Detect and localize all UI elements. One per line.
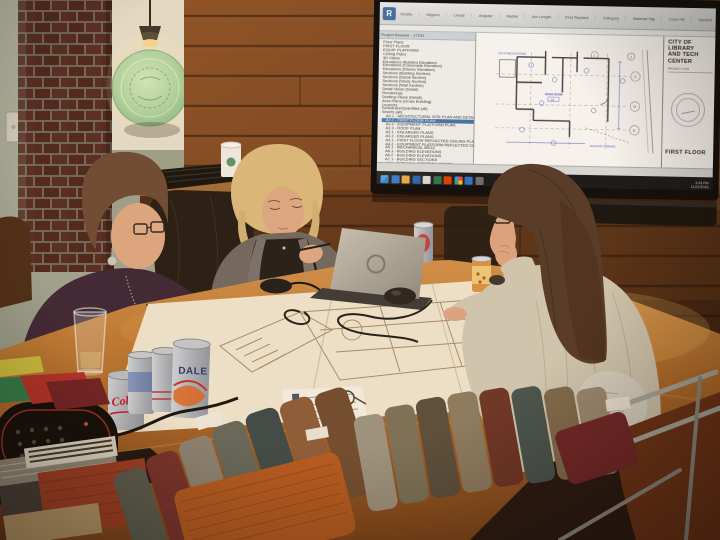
- dale-label: DALE: [178, 366, 208, 378]
- foreground-scene: Coke DALE: [0, 0, 720, 540]
- eyeglasses: [134, 224, 147, 234]
- beverage-can: [128, 352, 155, 415]
- earring: [108, 257, 117, 266]
- beaded-bracelet: [489, 275, 505, 285]
- computer-mouse: [384, 288, 416, 305]
- photo-of-design-meeting: R ModifyAlignedLinearAngularRadialArc Le…: [0, 0, 720, 540]
- drinking-glass: [74, 308, 106, 376]
- necklace: [283, 247, 286, 250]
